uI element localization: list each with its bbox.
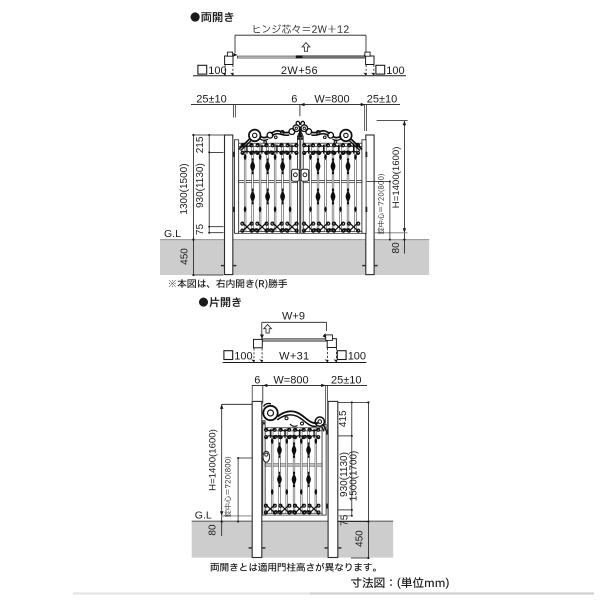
svg-text:100: 100 [208, 65, 226, 77]
svg-text:450: 450 [354, 530, 365, 547]
svg-text:415: 415 [338, 410, 349, 427]
svg-text:215: 215 [195, 136, 206, 153]
svg-text:75: 75 [339, 514, 350, 526]
svg-text:80: 80 [208, 524, 219, 536]
svg-text:25±10: 25±10 [331, 374, 362, 386]
svg-text:W+31: W+31 [279, 350, 309, 362]
svg-text:W=800: W=800 [273, 374, 308, 386]
svg-text:1500(1700): 1500(1700) [349, 451, 360, 502]
svg-text:25±10: 25±10 [367, 93, 398, 105]
svg-text:2W+56: 2W+56 [281, 65, 318, 77]
svg-text:W=800: W=800 [314, 93, 349, 105]
svg-text:75: 75 [195, 224, 206, 236]
svg-text:W+9: W+9 [282, 310, 305, 322]
svg-text:930(1130): 930(1130) [195, 163, 206, 208]
svg-text:G.L: G.L [164, 228, 181, 240]
svg-text:450: 450 [179, 248, 190, 265]
svg-text:25±10: 25±10 [196, 93, 227, 105]
svg-text:H=1400(1600): H=1400(1600) [391, 147, 402, 209]
svg-text:6: 6 [291, 93, 297, 105]
svg-text:80: 80 [391, 242, 402, 254]
svg-text:H=1400(1600): H=1400(1600) [207, 429, 218, 491]
svg-text:100: 100 [234, 350, 252, 362]
svg-text:100: 100 [348, 350, 366, 362]
svg-text:G.L: G.L [195, 510, 212, 522]
svg-text:6: 6 [254, 374, 260, 386]
svg-text:100: 100 [386, 65, 404, 77]
svg-text:1300(1500): 1300(1500) [179, 163, 190, 214]
